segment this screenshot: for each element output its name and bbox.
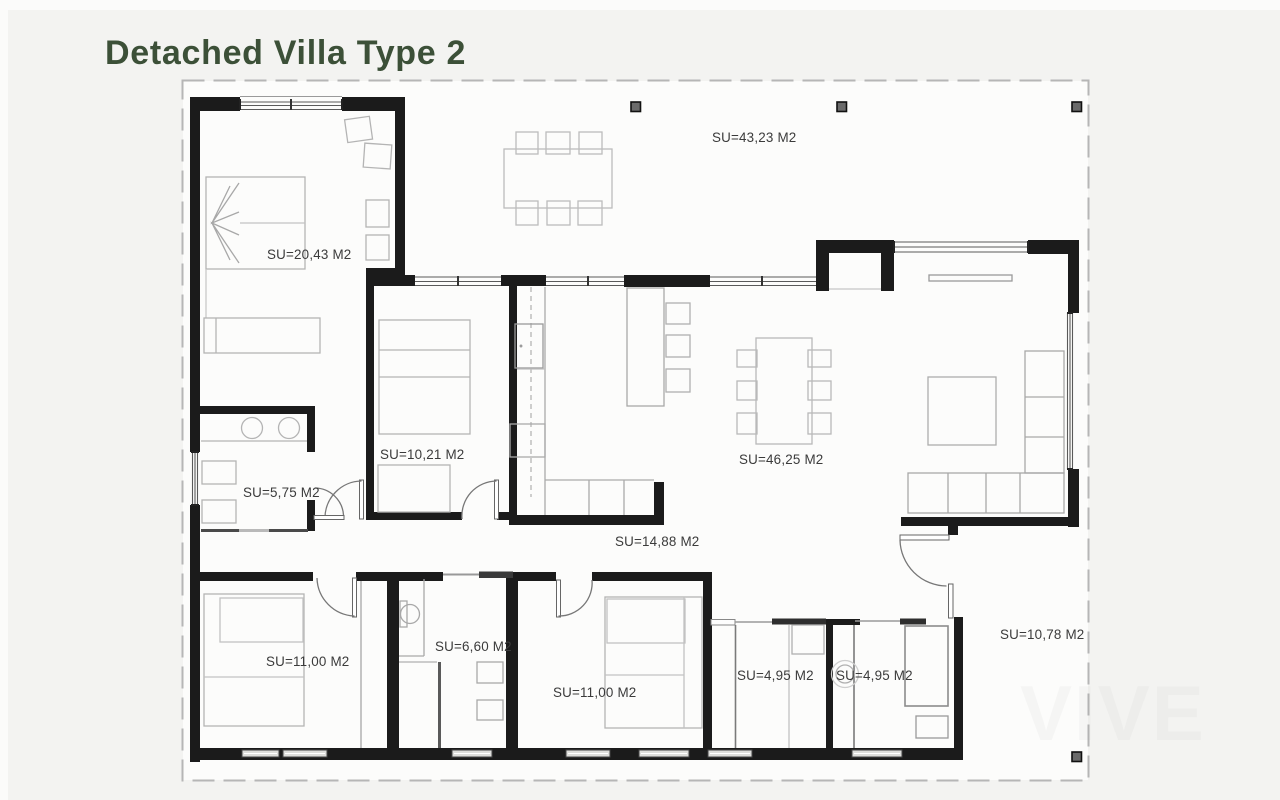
svg-text:SU=5,75 M2: SU=5,75 M2: [243, 485, 320, 500]
svg-text:SU=11,00 M2: SU=11,00 M2: [266, 654, 349, 669]
svg-text:SU=11,00 M2: SU=11,00 M2: [553, 685, 636, 700]
svg-text:SU=4,95 M2: SU=4,95 M2: [836, 668, 913, 683]
svg-text:SU=14,88 M2: SU=14,88 M2: [615, 534, 699, 549]
svg-text:SU=4,95 M2: SU=4,95 M2: [737, 668, 814, 683]
svg-text:SU=10,21 M2: SU=10,21 M2: [380, 447, 464, 462]
svg-text:SU=6,60 M2: SU=6,60 M2: [435, 639, 512, 654]
svg-text:SU=10,78 M2: SU=10,78 M2: [1000, 627, 1084, 642]
svg-text:SU=20,43 M2: SU=20,43 M2: [267, 247, 351, 262]
svg-text:SU=43,23 M2: SU=43,23 M2: [712, 130, 796, 145]
svg-text:Detached Villa Type 2: Detached Villa Type 2: [105, 34, 466, 72]
svg-text:VIVE: VIVE: [1020, 669, 1206, 757]
svg-text:SU=46,25 M2: SU=46,25 M2: [739, 452, 823, 467]
